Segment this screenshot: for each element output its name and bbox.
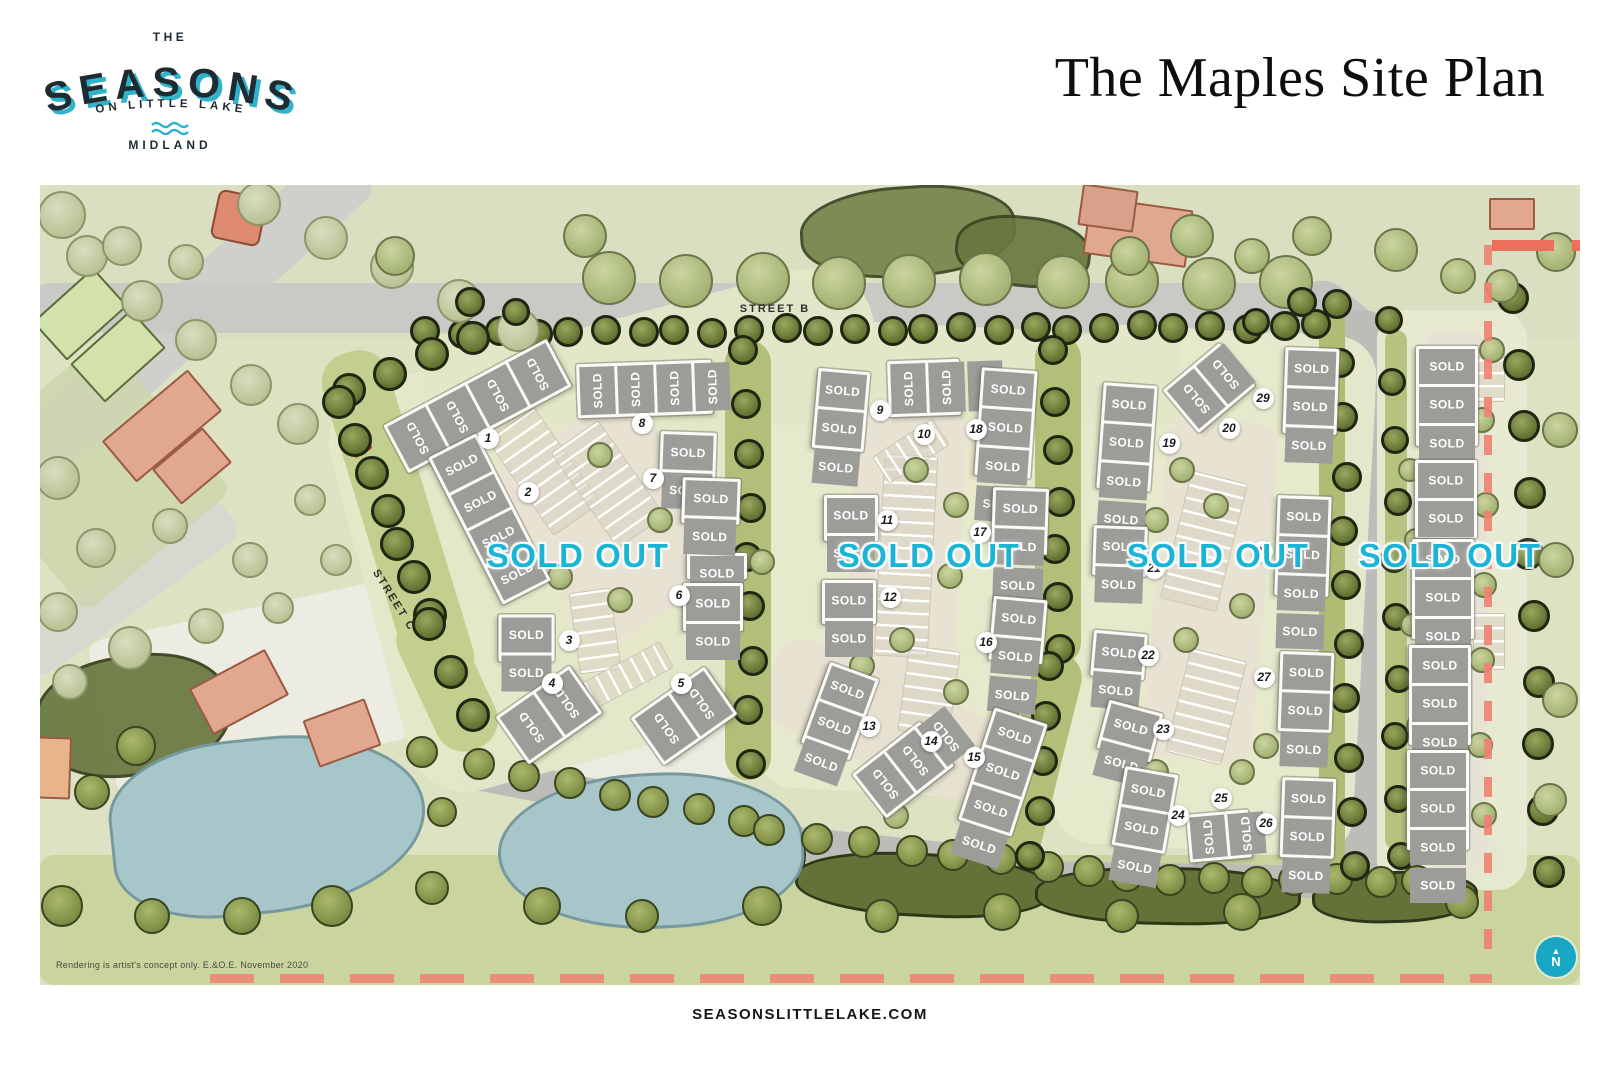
website-url: SEASONSLITTLELAKE.COM [0, 1006, 1620, 1023]
sold-out-label: SOLD OUT [769, 537, 1089, 577]
disclaimer-text: Rendering is artist's concept only. E.&O… [56, 960, 308, 970]
overlay-layer: ▲ N Rendering is artist's concept only. … [40, 185, 1580, 985]
logo-city: MIDLAND [128, 138, 211, 152]
page-title: The Maples Site Plan [1040, 46, 1560, 110]
logo-waves-icon [152, 123, 188, 134]
boundary-dashed-line-bottom [210, 974, 1492, 983]
boundary-dashed-line-right [1484, 245, 1492, 959]
seasons-logo: THE SEASONS SEASONS ON LITTLE LAKE MIDLA… [38, 20, 308, 160]
sold-out-label: SOLD OUT [418, 537, 738, 577]
site-plan-map: SOLDSOLDSOLDSOLDSOLDSOLDSOLDSOLDSOLDSOLD… [40, 185, 1580, 985]
sold-out-label: SOLD OUT [1290, 537, 1580, 577]
boundary-dashed-line-top [1492, 240, 1580, 251]
logo-the: THE [153, 30, 188, 44]
site-plan-page: THE SEASONS SEASONS ON LITTLE LAKE MIDLA… [0, 0, 1620, 1080]
street-label: STREET B [715, 303, 835, 317]
north-letter: N [1551, 955, 1560, 968]
north-compass-icon: ▲ N [1536, 937, 1576, 977]
